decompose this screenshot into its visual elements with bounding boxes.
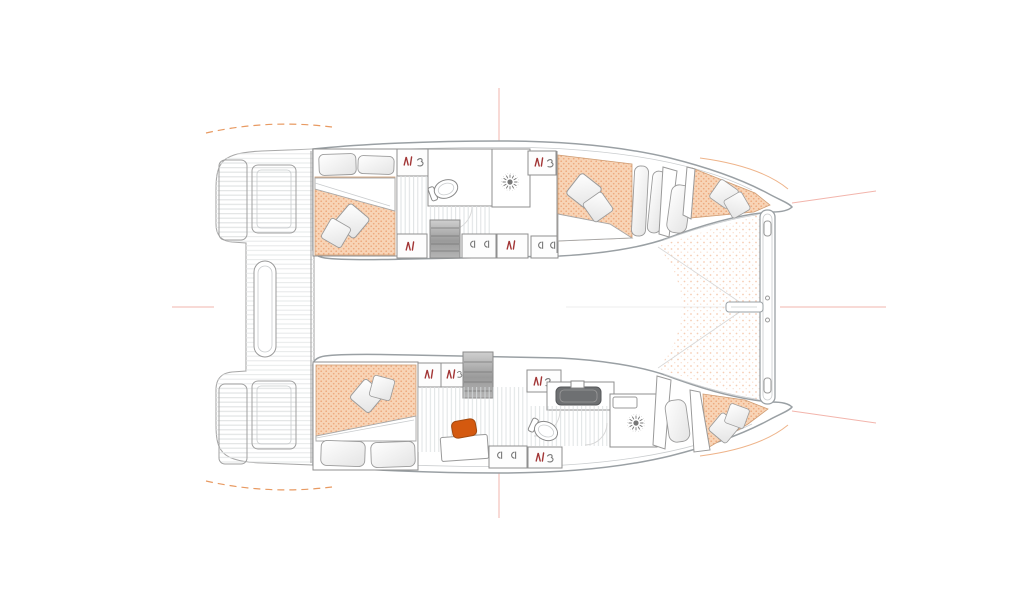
bow-guide-upper [792,191,876,203]
port-swim-platform [219,160,247,240]
bow-cleat [764,378,771,393]
bow-guide-lower [792,411,876,423]
cockpit-bench [254,261,276,357]
wardrobe [497,234,528,258]
desk [440,434,489,461]
port-aft-cabin [313,149,397,256]
starboard-swim-platform [219,384,247,464]
starboard-aft-cabin [313,362,418,470]
aft-cockpit-deck [214,148,316,466]
pillow [358,155,395,174]
pillow [319,153,357,175]
desk-chair [451,418,478,439]
drawers [531,236,558,258]
wardrobe [397,234,427,258]
starboard-transom-steps [252,381,296,449]
stern-guide-arc-top [206,124,332,133]
bow-cleat [764,221,771,236]
drawers [462,234,496,258]
drawers [489,446,527,468]
shower-stall [492,149,530,207]
shower-seat [613,397,637,408]
floorplan-stage: Catamaran yacht interior layout, plan vi… [0,0,1024,600]
pillow [371,441,416,468]
companionway-steps [430,220,460,258]
floorplan-canvas: Catamaran yacht interior layout, plan vi… [0,0,1024,600]
wardrobe [418,363,441,387]
stern-guide-arc-bottom [206,481,332,490]
pillow [321,440,366,467]
port-transom-steps [252,165,296,233]
wardrobe [528,447,562,468]
faucet [571,381,584,388]
